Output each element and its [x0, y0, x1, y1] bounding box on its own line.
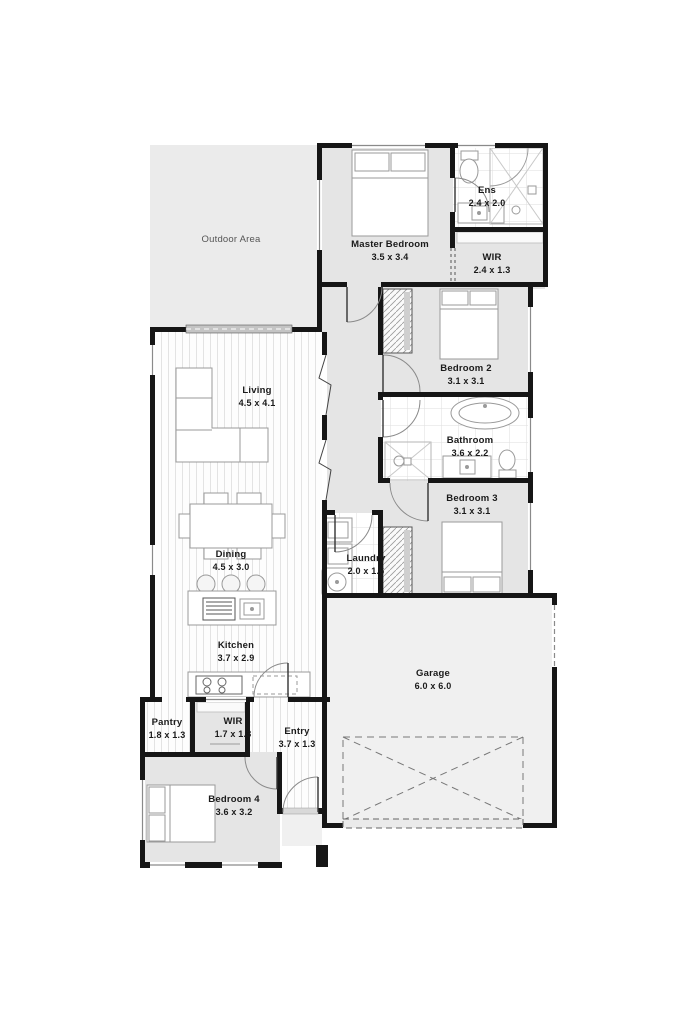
bedroom4-bed [147, 785, 215, 842]
room-label-living: Living 4.5 x 4.1 [239, 385, 276, 409]
kitchen-island [188, 575, 276, 625]
room-label-bedroom4: Bedroom 4 3.6 x 3.2 [208, 794, 259, 818]
room-label-wir-master: WIR 2.4 x 1.3 [474, 252, 511, 276]
room-label-pantry: Pantry 1.8 x 1.3 [149, 717, 186, 741]
front-door-threshold [283, 808, 318, 814]
garage-door [343, 819, 523, 828]
room-label-bedroom3: Bedroom 3 3.1 x 3.1 [446, 493, 497, 517]
master-bed [352, 150, 428, 236]
room-label-bathroom: Bathroom 3.6 x 2.2 [447, 435, 493, 459]
room-label-master: Master Bedroom 3.5 x 3.4 [351, 239, 429, 263]
floor-plan-drawing [0, 0, 683, 1024]
bedroom2-bed [440, 289, 498, 359]
room-label-entry: Entry 3.7 x 1.3 [279, 726, 316, 750]
bedroom3-bed [442, 522, 502, 595]
floor-plan-page: Outdoor Area Master Bedroom 3.5 x 3.4 En… [0, 0, 683, 1024]
bedroom2-wardrobe [383, 289, 412, 353]
room-label-garage: Garage 6.0 x 6.0 [415, 668, 452, 692]
room-label-bedroom2: Bedroom 2 3.1 x 3.1 [440, 363, 491, 387]
room-label-kitchen: Kitchen 3.7 x 2.9 [218, 640, 255, 664]
room-label-laundry: Laundry 2.0 x 1.6 [347, 553, 386, 577]
room-label-ens: Ens 2.4 x 2.0 [469, 185, 506, 209]
room-label-wir-entry: WIR 1.7 x 1.3 [215, 716, 252, 740]
porch-fill [282, 812, 322, 846]
bedroom3-wardrobe [383, 527, 412, 595]
room-label-dining: Dining 4.5 x 3.0 [213, 549, 250, 573]
room-label-outdoor: Outdoor Area [202, 234, 261, 246]
garage-fill [322, 598, 557, 826]
kitchen-bench [188, 672, 310, 697]
